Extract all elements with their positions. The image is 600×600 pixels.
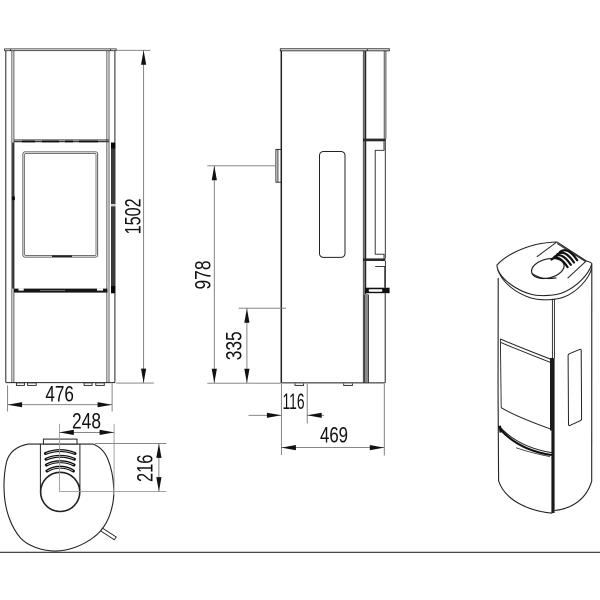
svg-text:1502: 1502 [120, 198, 145, 234]
svg-text:469: 469 [320, 423, 348, 448]
svg-text:476: 476 [45, 382, 74, 407]
svg-text:216: 216 [132, 455, 157, 483]
svg-text:248: 248 [72, 409, 101, 434]
svg-text:116: 116 [283, 389, 305, 414]
svg-text:335: 335 [222, 331, 247, 360]
svg-text:978: 978 [191, 261, 216, 290]
